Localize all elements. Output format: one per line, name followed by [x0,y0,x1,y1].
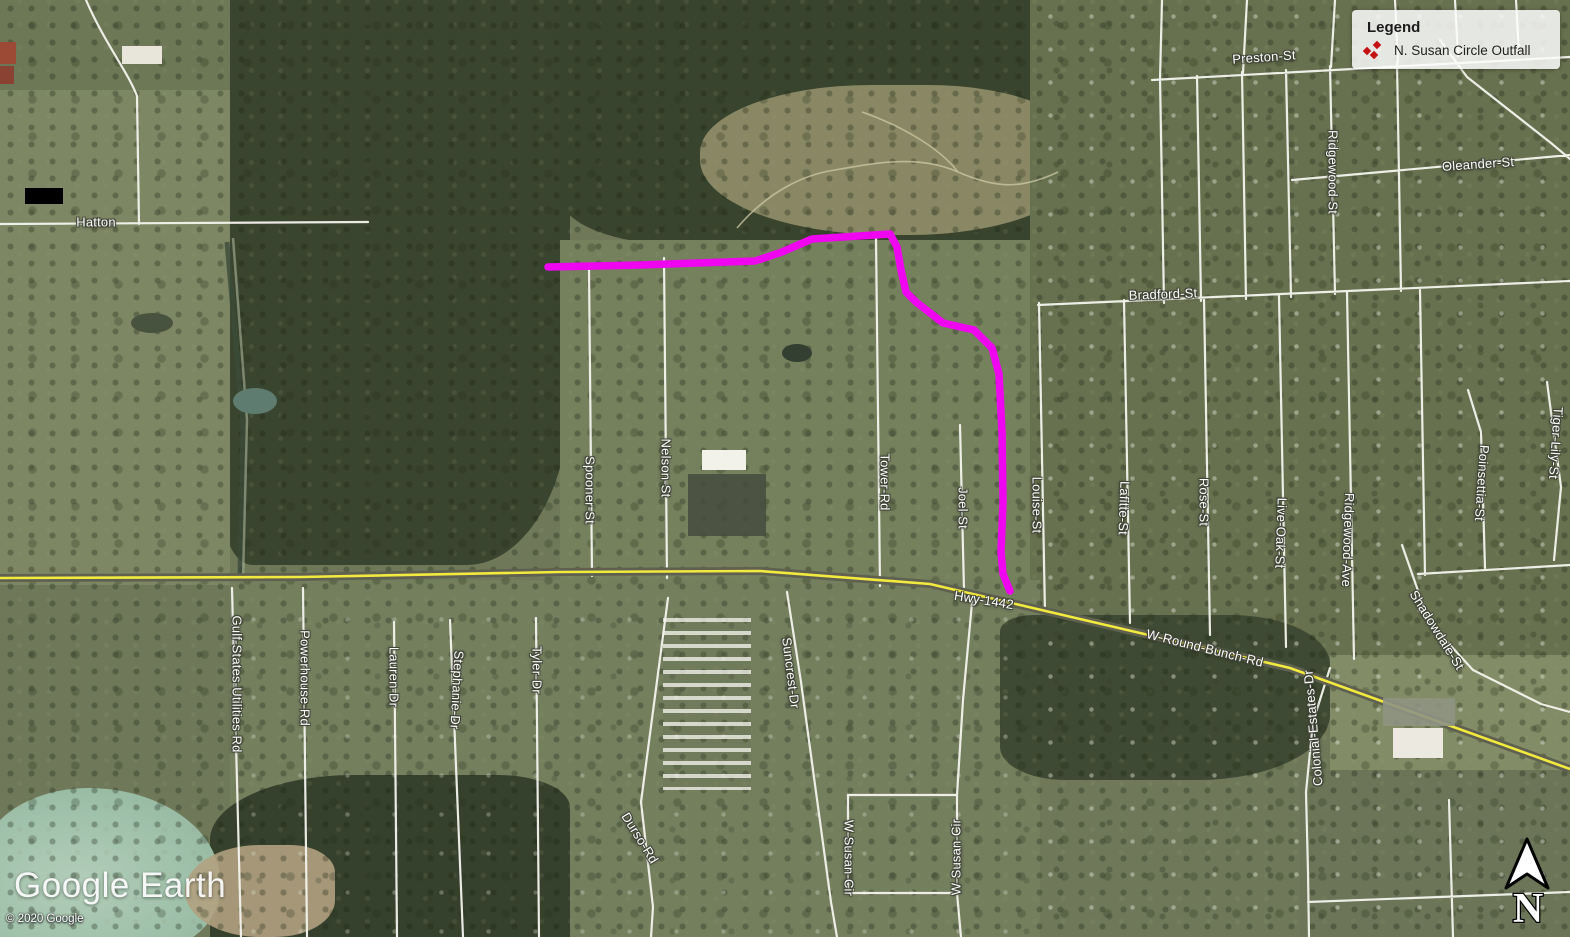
street-label-lafitte: Lafitte-St [1117,481,1132,535]
dirt-trails [737,112,1058,228]
map-viewport[interactable]: Hatton Preston-St Oleander-St Ridgewood-… [0,0,1570,937]
street-label-lauren: Lauren-Dr [388,647,401,707]
copyright-text: © 2020 Google [6,913,84,925]
pond [131,313,173,333]
north-letter: N [1513,886,1543,926]
street-label-louise: Louise-St [1031,477,1044,534]
legend-title: Legend [1367,19,1560,36]
street-label-joel: Joel-St [957,487,970,529]
street-label-ridgewood-st: Ridgewood-St [1327,130,1340,214]
street-label-powerhouse: Powerhouse-Rd [299,630,312,726]
street-label-gulf-states: Gulf-States-Utilities-Rd [231,616,244,753]
street-label-w-susan-left: W-Susan-Cir [843,820,856,896]
legend-item-label: N. Susan Circle Outfall [1394,43,1531,58]
street-label-stephanie: Stephanie-Dr [448,650,465,730]
legend-item: N. Susan Circle Outfall [1363,41,1560,59]
street-label-w-susan-right: W-Susan-Cir [950,819,963,895]
street-label-live-oak: Live-Oak-St [1273,497,1288,568]
pond [782,344,812,362]
n-susan-circle-outfall-path[interactable] [548,234,1010,591]
red-roof-building [0,42,16,64]
pond [233,388,277,414]
street-label-spooner: Spooner-St [584,456,597,524]
street-label-bradford: Bradford-St [1128,286,1197,301]
red-roof-building [0,66,14,84]
north-compass: N [1498,836,1558,926]
legend-panel: Legend N. Susan Circle Outfall [1352,10,1560,69]
google-earth-logo: Google Earth [14,866,226,906]
north-arrow-icon: N [1498,836,1558,926]
building-w [25,188,63,204]
outfall-cluster-icon [1363,41,1385,59]
street-label-tower: Tower-Rd [879,453,892,510]
street-label-tyler: Tyler-Dr [531,646,544,694]
parking-lot [688,474,766,536]
building-store [702,450,746,470]
parking-lot-se [1383,698,1455,726]
street-label-nelson: Nelson-St [660,439,673,498]
barn-nw [122,46,162,64]
building-se [1393,728,1443,758]
street-label-hatton: Hatton [76,216,116,229]
street-label-rose: Rose-St [1198,478,1211,526]
street-label-ridgewood-ave: Ridgewood-Ave [1340,493,1356,588]
